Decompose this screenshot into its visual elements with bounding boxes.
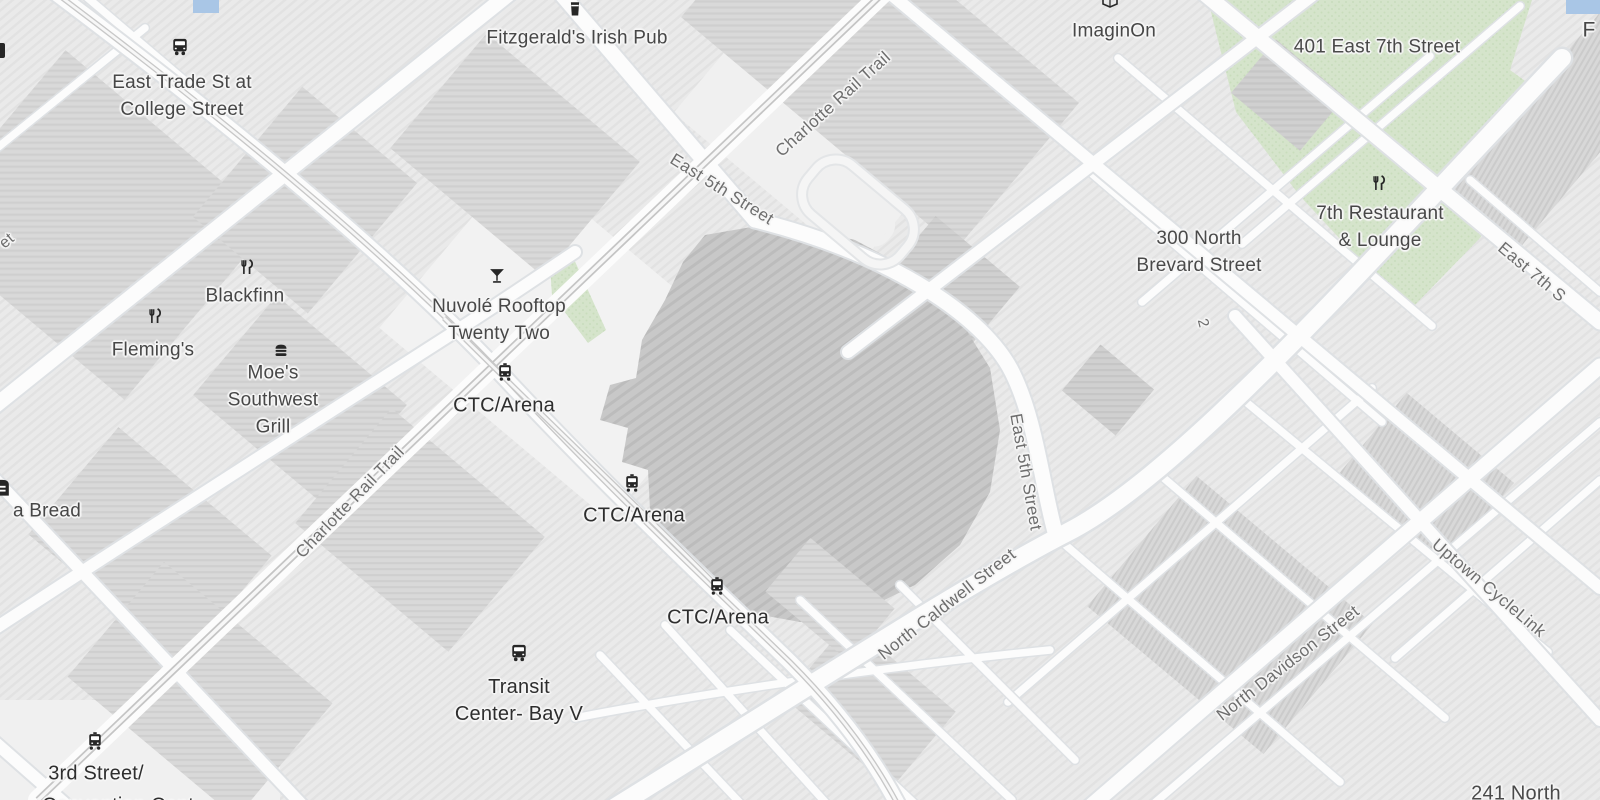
bus-icon[interactable] xyxy=(169,36,192,59)
poi-label-clipped-f: F xyxy=(1582,17,1595,44)
address-label-300-north-brevard: 300 North Brevard Street xyxy=(1136,225,1261,279)
transit-label-transit-center-bay-v[interactable]: Transit Center- Bay V xyxy=(455,674,583,728)
cocktail-icon[interactable] xyxy=(486,265,508,287)
transit-label-3rd-street-line2[interactable]: Convention Cent xyxy=(42,793,194,800)
clipped-icon xyxy=(0,43,5,58)
tram-icon[interactable] xyxy=(494,362,517,385)
tram-icon[interactable] xyxy=(84,731,107,754)
bread-icon[interactable] xyxy=(0,475,11,501)
poi-label-7th-restaurant[interactable]: 7th Restaurant & Lounge xyxy=(1316,200,1443,254)
transit-label-ctc-arena-3[interactable]: CTC/Arena xyxy=(667,605,769,632)
address-label-401-east-7th: 401 East 7th Street xyxy=(1294,34,1460,61)
poi-label-flemings[interactable]: Fleming's xyxy=(112,337,195,364)
poi-label-nuvole-rooftop[interactable]: Nuvolé Rooftop Twenty Two xyxy=(432,293,566,347)
book-icon[interactable] xyxy=(1098,0,1122,17)
poi-label-imaginon[interactable]: ImaginOn xyxy=(1072,18,1156,45)
tram-icon[interactable] xyxy=(706,576,729,599)
transit-label-3rd-street[interactable]: 3rd Street/ xyxy=(48,761,144,788)
restaurant-icon[interactable] xyxy=(144,306,166,328)
restaurant-icon[interactable] xyxy=(236,257,258,279)
poi-label-clipped-bread[interactable]: a Bread xyxy=(13,498,81,525)
poi-label-moes-southwest-grill[interactable]: Moe's Southwest Grill xyxy=(228,360,319,441)
transit-label-ctc-arena-2[interactable]: CTC/Arena xyxy=(583,503,685,530)
pint-icon[interactable] xyxy=(564,0,586,21)
bus-stop-label-east-trade[interactable]: East Trade St at College Street xyxy=(112,69,251,123)
map-canvas[interactable]: East Trade St at College Street Fitzgera… xyxy=(0,0,1600,800)
poi-label-fitzgeralds[interactable]: Fitzgerald's Irish Pub xyxy=(486,25,667,52)
tram-icon[interactable] xyxy=(621,473,644,496)
poi-label-blackfinn[interactable]: Blackfinn xyxy=(206,283,285,310)
bus-icon[interactable] xyxy=(508,642,531,665)
address-label-241-north: 241 North xyxy=(1471,781,1561,800)
restaurant-icon[interactable] xyxy=(1368,173,1390,195)
transit-label-ctc-arena-1[interactable]: CTC/Arena xyxy=(453,393,555,420)
